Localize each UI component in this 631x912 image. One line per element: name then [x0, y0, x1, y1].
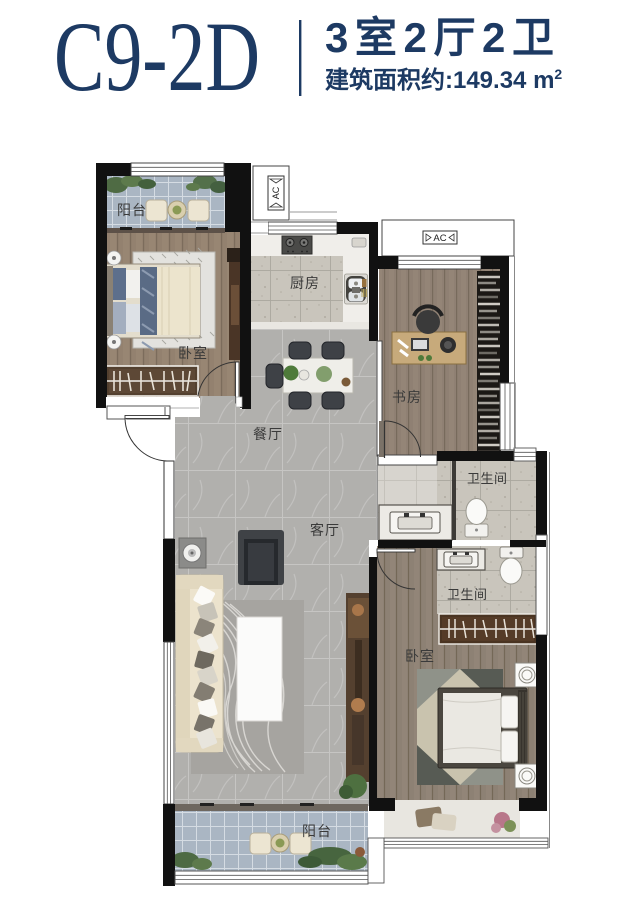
svg-text:客厅: 客厅 [310, 522, 340, 538]
svg-text:阳台: 阳台 [302, 823, 332, 839]
svg-text:厨房: 厨房 [290, 275, 320, 291]
svg-text:AC: AC [271, 186, 281, 199]
svg-text:书房: 书房 [392, 389, 422, 405]
svg-text:卫生间: 卫生间 [447, 587, 488, 602]
svg-text:C9-2D: C9-2D [54, 1, 260, 112]
svg-text:建筑面积约:149.34 m2: 建筑面积约:149.34 m2 [325, 66, 562, 94]
svg-text:餐厅: 餐厅 [253, 426, 283, 442]
svg-text:3室2厅2卫: 3室2厅2卫 [325, 14, 554, 61]
svg-text:AC: AC [433, 233, 446, 244]
svg-text:阳台: 阳台 [117, 202, 147, 218]
svg-text:卧室: 卧室 [405, 648, 435, 664]
svg-text:卧室: 卧室 [178, 345, 208, 361]
svg-text:卫生间: 卫生间 [467, 471, 508, 486]
